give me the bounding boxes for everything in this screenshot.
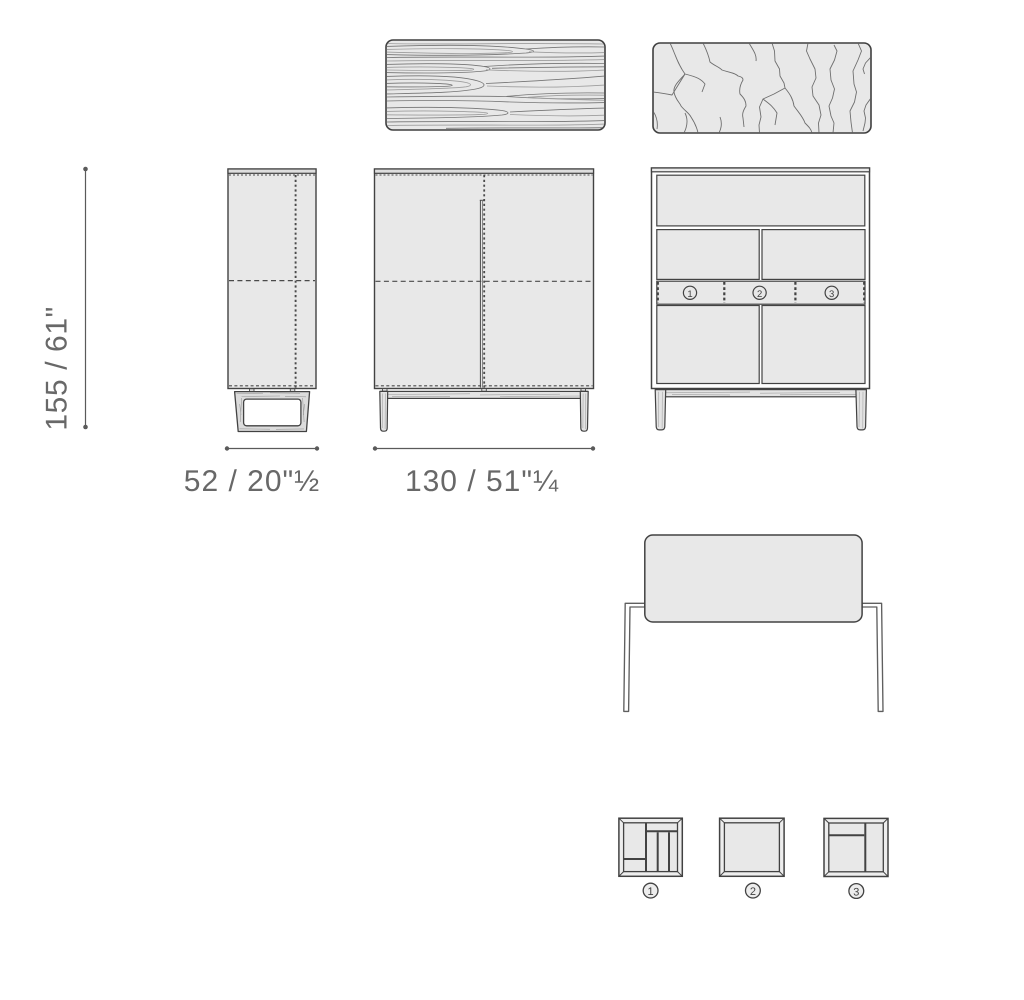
svg-text:130 / 51"¼: 130 / 51"¼ [405, 465, 559, 498]
svg-text:2: 2 [750, 886, 756, 898]
svg-text:1: 1 [648, 886, 654, 898]
svg-text:155 / 61": 155 / 61" [41, 306, 74, 430]
svg-text:1: 1 [687, 289, 692, 300]
svg-text:2: 2 [757, 289, 762, 300]
svg-text:3: 3 [853, 886, 859, 898]
svg-text:3: 3 [829, 289, 834, 300]
svg-text:52 / 20"½: 52 / 20"½ [184, 465, 320, 498]
